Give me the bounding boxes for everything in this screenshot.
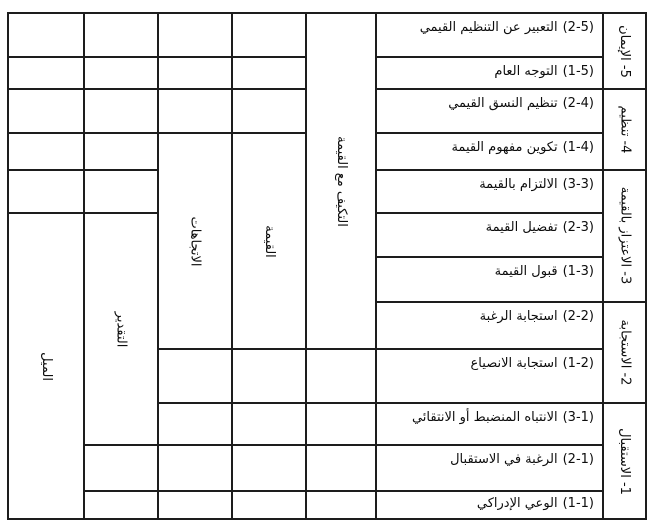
item-cell: (1-3)قبول القيمة [377,257,601,302]
item-cell: (1-5)التوجه العام [377,57,601,89]
item-number: (2-2) [563,309,594,324]
level-label: 3- الاعتزاز بالقيمة [617,187,632,285]
item-number: (3-1) [563,410,594,425]
item-cell: (1-1)الوعي الإدراكي [377,491,601,519]
grid-line [7,56,307,58]
grid-line [7,88,307,90]
item-text: التوجه العام [494,64,557,79]
level-label-cell: 2- الاستجابة [604,302,645,403]
category-label: الاتجاهات [188,216,203,266]
item-text: قبول القيمة [495,264,558,279]
item-text: الالتزام بالقيمة [479,177,557,192]
grid-line [7,169,159,171]
item-number: (1-5) [563,64,594,79]
item-text: التعبير عن التنظيم القيمي [420,20,558,35]
item-number: (1-3) [563,264,594,279]
item-text: تنظيم النسق القيمي [448,96,557,111]
category-label: الميل [38,352,53,381]
category-label-cell: التقدير [85,213,157,445]
level-label-cell: 3- الاعتزاز بالقيمة [604,170,645,301]
item-cell: (2-4)تنظيم النسق القيمي [377,89,601,133]
item-cell: (3-1)الانتباه المنضبط أو الانتقائي [377,403,601,445]
item-cell: (2-5)التعبير عن التنظيم القيمي [377,13,601,57]
item-cell: (2-2)استجابة الرغبة [377,302,601,349]
level-label: 4- تنظيم [617,106,632,154]
category-label-cell: التكيف مع القيمة [307,13,375,349]
category-label-cell: القيمة [233,133,305,349]
category-label: القيمة [262,225,277,258]
item-cell: (2-3)تفضيل القيمة [377,213,601,257]
item-number: (1-1) [563,496,594,511]
item-text: تفضيل القيمة [486,220,558,235]
item-text: تكوين مفهوم القيمة [451,140,557,155]
category-label: التقدير [114,311,129,347]
item-number: (1-4) [563,140,594,155]
category-label-cell: الميل [9,213,83,519]
level-label: 1- الاستقبال [617,428,632,495]
item-text: الرغبة في الاستقبال [450,452,558,467]
item-number: (2-3) [563,220,594,235]
level-label-cell: 4- تنظيم [604,89,645,170]
item-number: (2-5) [563,20,594,35]
item-cell: (3-3)الالتزام بالقيمة [377,170,601,213]
item-number: (2-1) [563,452,594,467]
level-label-cell: 5- الإيمان [604,13,645,89]
item-number: (2-4) [563,96,594,111]
category-label-cell: الاتجاهات [159,133,231,349]
category-label: التكيف مع القيمة [334,136,349,227]
item-text: الانتباه المنضبط أو الانتقائي [412,410,558,425]
item-cell: (1-2)استجابة الانصياع [377,349,601,403]
item-cell: (2-1)الرغبة في الاستقبال [377,445,601,491]
item-text: استجابة الانصياع [471,356,558,371]
item-cell: (1-4)تكوين مفهوم القيمة [377,133,601,170]
taxonomy-table: (2-5)التعبير عن التنظيم القيمي (1-5)التو… [0,0,650,530]
level-label: 2- الاستجابة [617,320,632,386]
item-number: (1-2) [563,356,594,371]
level-label: 5- الإيمان [617,25,632,78]
item-text: استجابة الرغبة [480,309,558,324]
item-text: الوعي الإدراكي [477,496,558,511]
item-number: (3-3) [563,177,594,192]
level-label-cell: 1- الاستقبال [604,403,645,519]
